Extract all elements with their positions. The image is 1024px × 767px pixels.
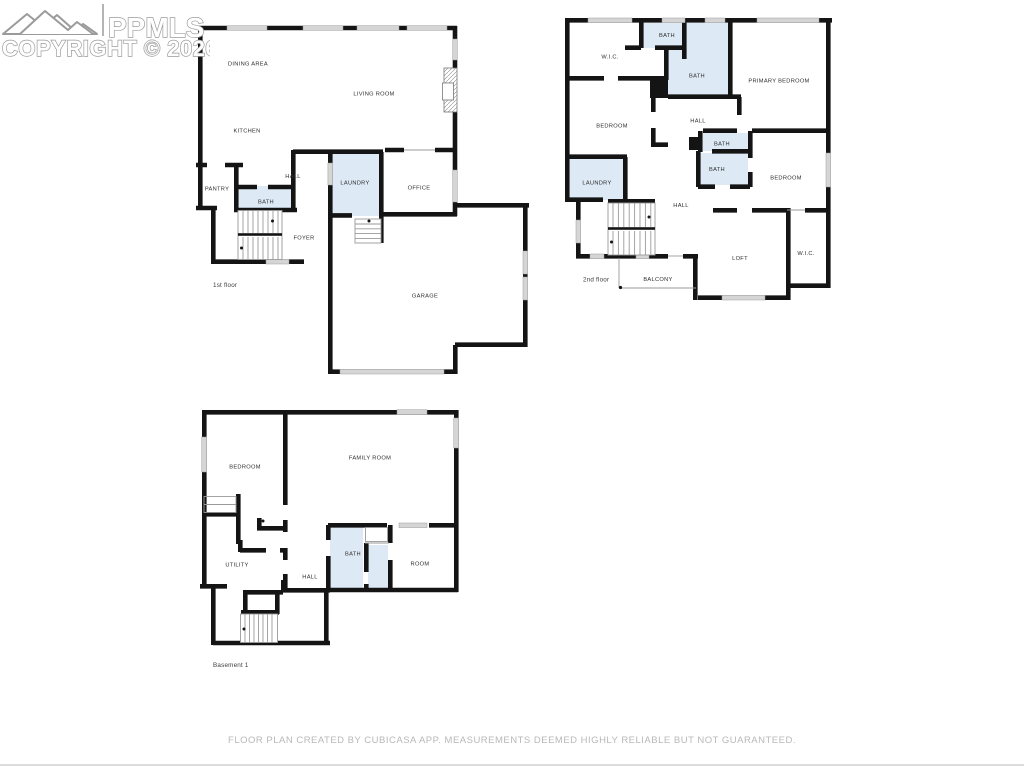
room-label-laundry: LAUNDRY	[582, 181, 611, 187]
room-label-hall-lower: HALL	[673, 203, 688, 209]
room-label-wic-top: W.I.C.	[601, 55, 618, 61]
bath-closet	[365, 528, 389, 544]
room-label-laundry: LAUNDRY	[340, 181, 369, 187]
room-label-garage: GARAGE	[412, 294, 438, 300]
room-label-bedroom: BEDROOM	[229, 465, 261, 471]
floor-plan-page: DINING AREA LIVING ROOM KITCHEN PANTRY H…	[0, 0, 1024, 767]
room-fill-bath-primary	[666, 46, 730, 98]
room-label-bath-small: BATH	[659, 33, 675, 39]
bedroom-closet	[204, 497, 236, 513]
room-label-hall-top: HALL	[690, 119, 705, 125]
room-label-bath: BATH	[258, 200, 274, 206]
garage-stairs	[355, 219, 381, 243]
room-label-foyer: FOYER	[293, 236, 314, 242]
room-label-dining: DINING AREA	[228, 62, 268, 68]
room-label-bath-mid-top: BATH	[714, 142, 730, 148]
floor-label-basement: Basement 1	[213, 662, 249, 669]
room-label-kitchen: KITCHEN	[233, 129, 260, 135]
room-label-room: ROOM	[411, 562, 430, 568]
balcony-outline	[619, 258, 696, 289]
room-label-hall: HALL	[302, 575, 317, 581]
disclaimer-text: FLOOR PLAN CREATED BY CUBICASA APP. MEAS…	[0, 735, 1024, 746]
room-label-primary-bedroom: PRIMARY BEDROOM	[748, 79, 809, 85]
wall-mass	[650, 78, 668, 98]
staircase	[238, 211, 282, 260]
fireplace-icon	[443, 68, 458, 112]
staircase	[241, 614, 278, 643]
room-label-loft: LOFT	[732, 256, 748, 262]
room-label-bedroom-right: BEDROOM	[770, 176, 802, 182]
door-marker	[262, 520, 265, 523]
room-label-pantry: PANTRY	[205, 187, 229, 193]
bottom-edge-strip	[0, 764, 1024, 766]
room-fill-bath-primary-top	[686, 23, 730, 47]
floor-label-first: 1st floor	[213, 282, 237, 289]
room-label-office: OFFICE	[408, 186, 431, 192]
mountain-logo-icon	[3, 11, 97, 34]
room-label-bath-primary: BATH	[689, 74, 705, 80]
staircase	[608, 203, 655, 255]
room-label-bedroom-left: BEDROOM	[596, 124, 628, 130]
room-label-wic-right: W.I.C.	[797, 251, 814, 257]
watermark-copyright: COPYRIGHT © 2026	[2, 36, 210, 61]
room-label-bath: BATH	[345, 552, 361, 558]
room-label-family: FAMILY ROOM	[349, 456, 391, 462]
room-label-bath-mid: BATH	[709, 167, 725, 173]
room-label-balcony: BALCONY	[643, 277, 672, 283]
room-fill-bath	[330, 527, 363, 589]
floor-plan-basement: BEDROOM FAMILY ROOM UTILITY HALL BATH RO…	[196, 404, 464, 672]
floor-plan-first-floor: DINING AREA LIVING ROOM KITCHEN PANTRY H…	[192, 18, 534, 382]
room-label-living: LIVING ROOM	[353, 92, 394, 98]
floor-plan-second-floor: W.I.C. BATH BATH PRIMARY BEDROOM BEDROOM…	[561, 12, 837, 306]
floor-label-second: 2nd floor	[583, 277, 609, 284]
room-fill-laundry	[570, 159, 623, 200]
room-fill-bath-right	[368, 545, 388, 589]
room-label-utility: UTILITY	[225, 563, 248, 569]
room-label-hall: HALL	[285, 174, 300, 180]
wall-mass	[689, 137, 701, 150]
room-fill-bath	[239, 186, 293, 211]
watermark: PPMLS COPYRIGHT © 2026	[0, 0, 210, 80]
